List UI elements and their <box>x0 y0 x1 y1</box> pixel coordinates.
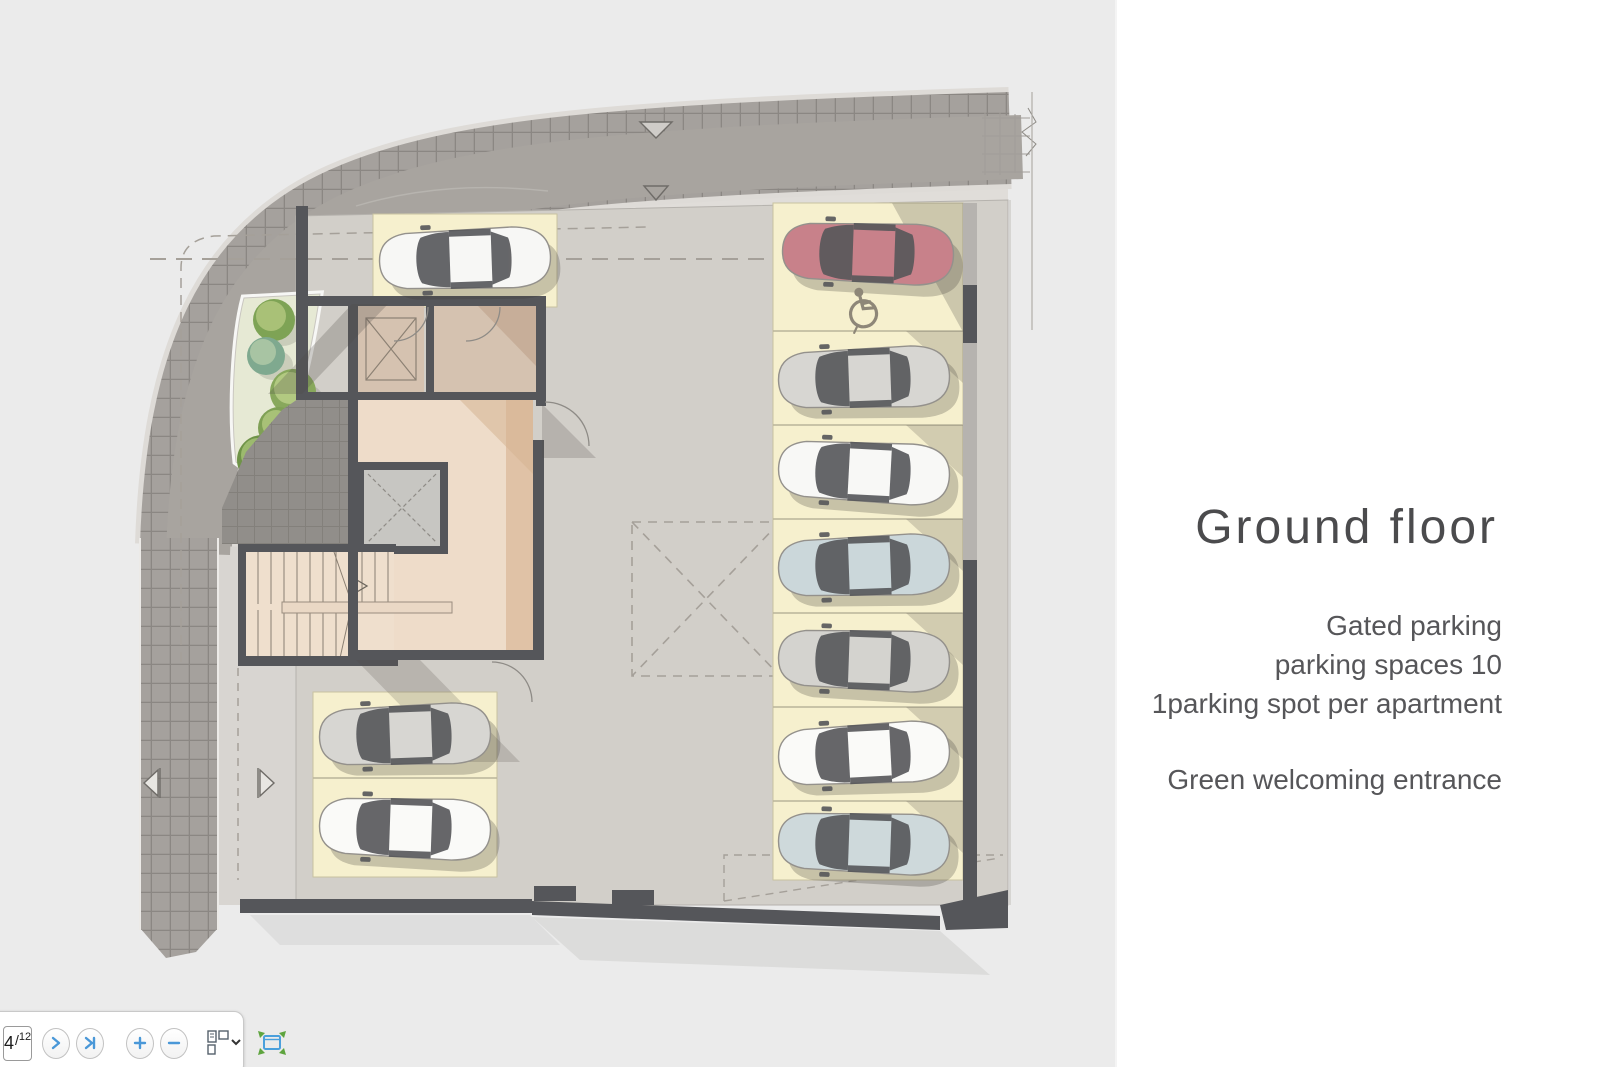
fit-page-icon <box>257 1030 287 1056</box>
car-right-4 <box>777 528 960 611</box>
last-page-icon <box>83 1036 97 1050</box>
car-top-left <box>378 221 561 304</box>
note-gap <box>1152 723 1502 760</box>
notes-block: Gated parking parking spaces 10 1parking… <box>1152 606 1502 799</box>
zoom-out-button[interactable] <box>160 1028 188 1059</box>
current-page: 4 <box>4 1033 14 1054</box>
fit-page-button[interactable] <box>257 1028 287 1059</box>
page-number-input[interactable]: 4 / 12 <box>3 1026 32 1061</box>
page-title: Ground floor <box>1195 500 1498 555</box>
page-layout-button[interactable] <box>207 1028 241 1059</box>
page-layout-icon <box>207 1030 241 1056</box>
floor-plan-drawing <box>0 0 1115 1067</box>
pdf-viewer-page: Ground floor Gated parking parking space… <box>0 0 1602 1067</box>
zoom-in-icon <box>133 1036 147 1050</box>
total-pages: 12 <box>19 1031 31 1043</box>
floor-plan <box>0 0 1115 1067</box>
chevron-down-icon <box>232 1040 240 1044</box>
note-line: Gated parking <box>1152 606 1502 645</box>
note-line: Green welcoming entrance <box>1152 760 1502 799</box>
navigation-toolbar: 4 / 12 <box>0 1011 244 1067</box>
last-page-button[interactable] <box>76 1028 104 1059</box>
note-line: 1parking spot per apartment <box>1152 684 1502 723</box>
next-page-button[interactable] <box>42 1028 70 1059</box>
car-right-2 <box>777 340 960 423</box>
next-page-icon <box>49 1036 63 1050</box>
zoom-out-icon <box>167 1036 181 1050</box>
car-bottom-left-1 <box>318 697 501 780</box>
note-line: parking spaces 10 <box>1152 645 1502 684</box>
zoom-in-button[interactable] <box>126 1028 154 1059</box>
sidewalk-strip <box>140 538 218 930</box>
